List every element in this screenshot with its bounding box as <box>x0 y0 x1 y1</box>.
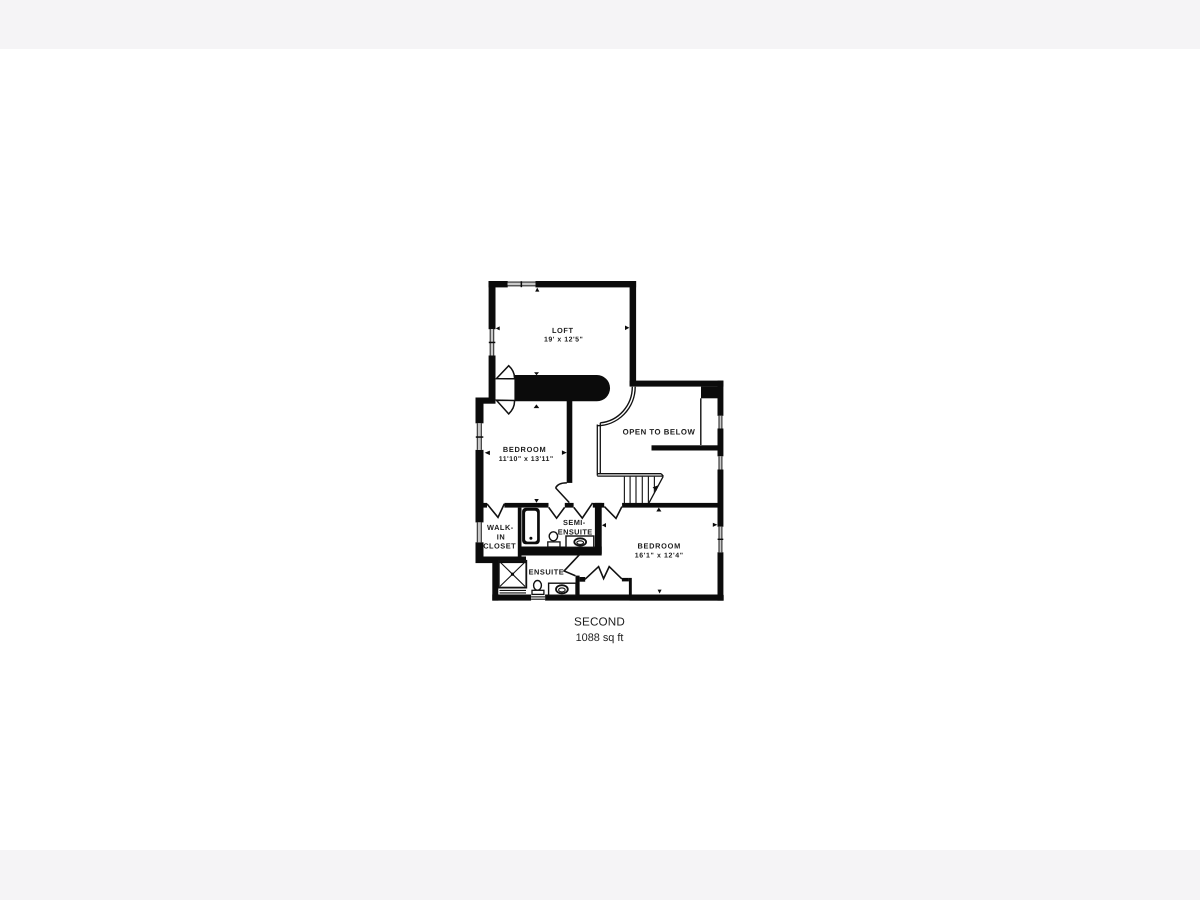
svg-text:LOFT: LOFT <box>552 326 574 335</box>
svg-text:SECOND: SECOND <box>574 615 625 628</box>
svg-text:19' x 12'5": 19' x 12'5" <box>544 336 583 343</box>
svg-text:ENSUITE: ENSUITE <box>529 568 565 577</box>
svg-text:OPEN TO BELOW: OPEN TO BELOW <box>623 428 696 437</box>
svg-text:BEDROOM: BEDROOM <box>637 542 681 551</box>
svg-text:16'1" x 12'4": 16'1" x 12'4" <box>635 552 684 559</box>
svg-text:CLOSET: CLOSET <box>483 542 516 551</box>
svg-text:11'10" x 13'11": 11'10" x 13'11" <box>499 456 554 463</box>
svg-text:SEMI-: SEMI- <box>563 518 586 527</box>
svg-text:IN: IN <box>497 533 505 542</box>
svg-text:BEDROOM: BEDROOM <box>503 445 547 454</box>
svg-text:WALK-: WALK- <box>487 523 514 532</box>
svg-text:ENSUITE: ENSUITE <box>558 528 593 537</box>
svg-text:1088 sq ft: 1088 sq ft <box>576 632 624 644</box>
